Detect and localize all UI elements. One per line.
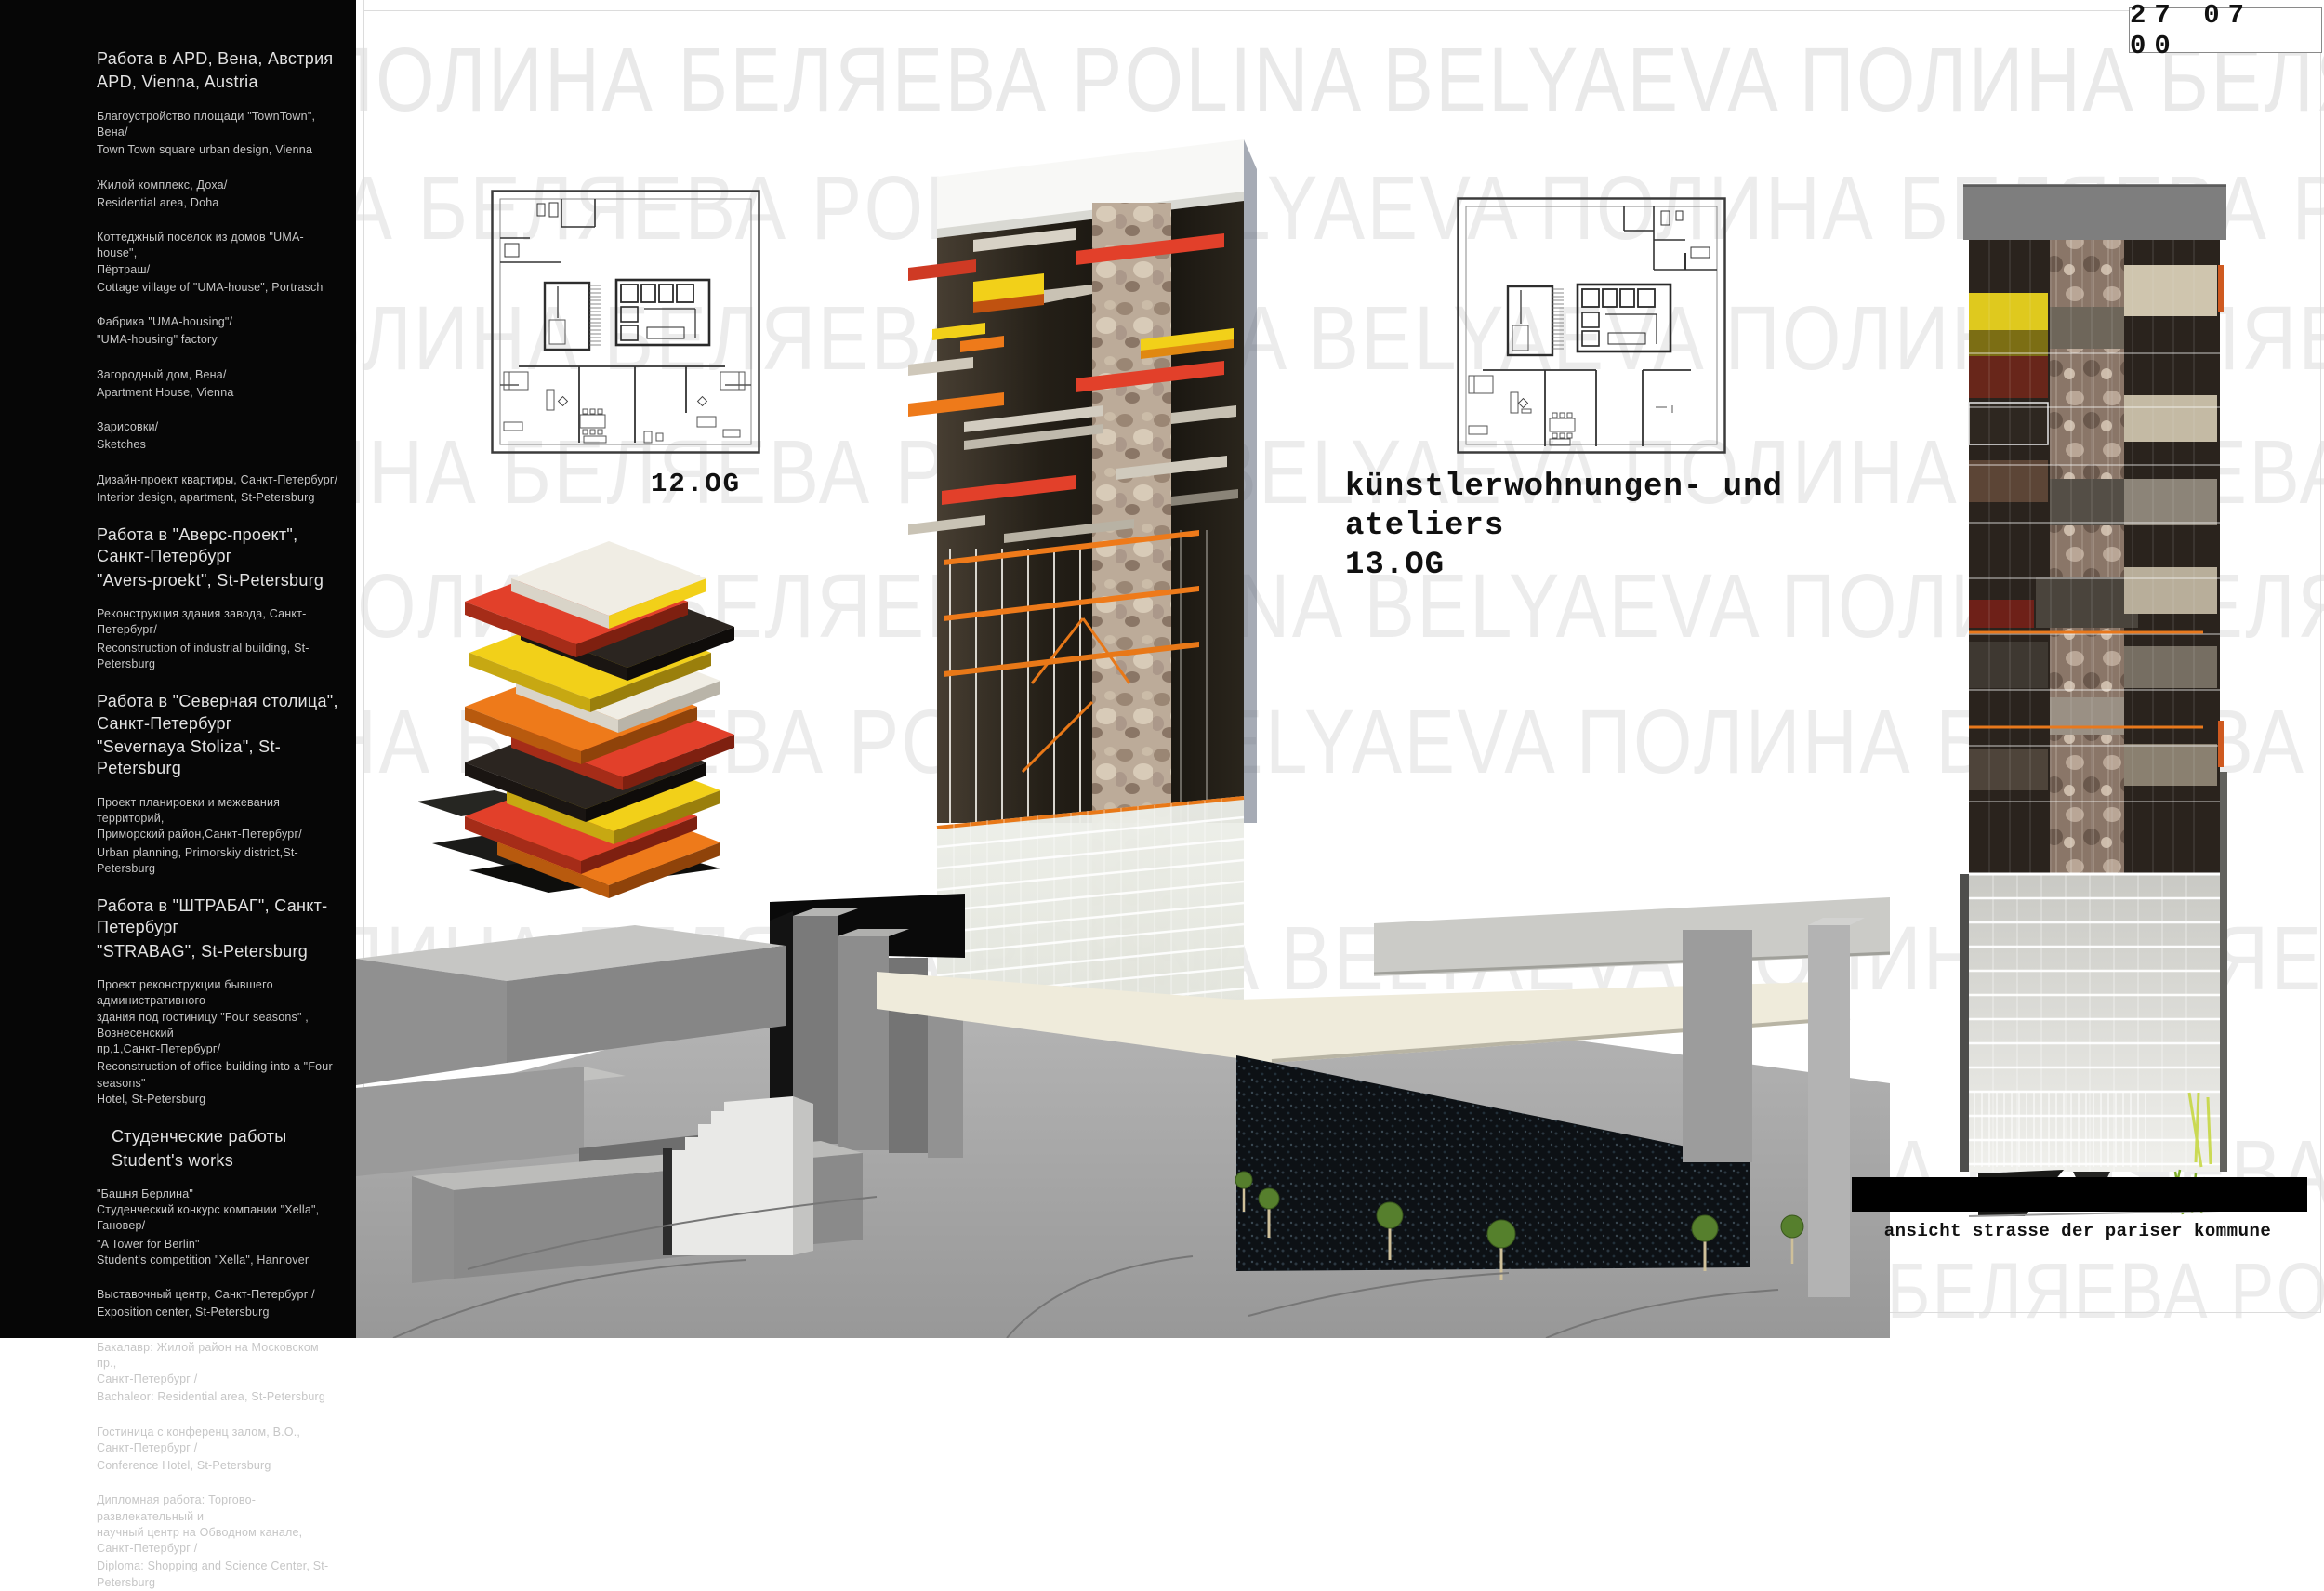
project-ru: Бакалавр: Жилой район на Московском пр.,… — [97, 1340, 341, 1388]
sidebar-project-item: Проект реконструкции бывшего администрат… — [97, 977, 341, 1107]
project-title-en: "Severnaya Stoliza", St-Petersburg — [97, 736, 341, 780]
sidebar-project-item: Фабрика "UMA-housing"/"UMA-housing" fact… — [97, 314, 341, 349]
sidebar-project-item: Реконструкция здания завода, Санкт-Петер… — [97, 606, 341, 672]
service-block — [545, 283, 601, 350]
sidebar-section-title: Студенческие работыStudent's works — [97, 1126, 341, 1172]
furniture — [504, 372, 745, 443]
project-title-en: "Avers-proekt", St-Petersburg — [97, 570, 341, 591]
apartment-walls — [500, 199, 595, 262]
plan-symbols — [559, 397, 707, 406]
sidebar-project-list: Работа в APD, Вена, АвстрияAPD, Vienna, … — [0, 0, 356, 1338]
frame-line-top — [363, 10, 2129, 11]
sidebar-project-item: Загородный дом, Вена/Apartment House, Vi… — [97, 367, 341, 402]
apartment-walls-lower — [500, 366, 751, 443]
floor-plan-13og — [1457, 197, 1726, 454]
project-title-ru: Работа в "ШТРАБАГ", Санкт-Петербург — [97, 895, 341, 939]
stacked-slab-model-rendering — [418, 523, 772, 904]
project-en: Interior design, apartment, St-Petersbur… — [97, 490, 341, 506]
floor-plan-12og — [491, 190, 760, 454]
sidebar-project-item: Дипломная работа: Торгово-развлекательны… — [97, 1492, 341, 1591]
project-ru: Проект реконструкции бывшего администрат… — [97, 977, 341, 1057]
project-ru: Загородный дом, Вена/ — [97, 367, 341, 383]
project-en: Urban planning, Primorskiy district,St-P… — [97, 845, 341, 878]
project-title-ru: Работа в APD, Вена, Австрия — [97, 48, 341, 70]
project-en: Cottage village of "UMA-house", Portrasc… — [97, 280, 341, 296]
roof-cap — [1963, 184, 2226, 240]
project-ru: Дизайн-проект квартиры, Санкт-Петербург/ — [97, 472, 341, 488]
project-title-en: APD, Vienna, Austria — [97, 72, 341, 93]
sidebar-project-item: "Башня Берлина" Студенческий конкурс ком… — [97, 1187, 341, 1268]
frame-line-right — [2320, 51, 2321, 1312]
project-ru: Фабрика "UMA-housing"/ — [97, 314, 341, 330]
project-en: Reconstruction of industrial building, S… — [97, 641, 341, 673]
sidebar-project-item: Гостиница с конференц залом, В.О., Санкт… — [97, 1425, 341, 1475]
project-ru: Дипломная работа: Торгово-развлекательны… — [97, 1492, 341, 1557]
project-en: "UMA-housing" factory — [97, 332, 341, 348]
sidebar-project-item: Жилой комплекс, Доха/Residential area, D… — [97, 178, 341, 212]
watermark-text: ПОЛИНА БЕЛЯЕВА POLINA BELYAEVA ПОЛИНА БЕ… — [356, 28, 2324, 132]
elevation-caption: ansicht strasse der pariser kommune — [1859, 1221, 2296, 1241]
project-en: Exposition center, St-Petersburg — [97, 1305, 341, 1320]
project-title-ru: Работа в "Северная столица", Санкт-Петер… — [97, 691, 341, 735]
project-en: Bachaleor: Residential area, St-Petersbu… — [97, 1389, 341, 1405]
project-ru: Реконструкция здания завода, Санкт-Петер… — [97, 606, 341, 639]
city-context-model — [356, 869, 1890, 1338]
sidebar-section-title: Работа в "ШТРАБАГ", Санкт-Петербург"STRA… — [97, 895, 341, 962]
date-stamp: 27 07 00 — [2130, 0, 2321, 61]
project-en: Apartment House, Vienna — [97, 385, 341, 401]
project-en: Conference Hotel, St-Petersburg — [97, 1458, 341, 1474]
apartment-walls-lower — [1483, 370, 1691, 446]
sidebar-section-title: Работа в "Северная столица", Санкт-Петер… — [97, 691, 341, 780]
atelier-caption-line3: 13.OG — [1345, 546, 1783, 585]
project-ru: Проект планировки и межевания территорий… — [97, 795, 341, 843]
plan-symbols — [1519, 399, 1528, 408]
atelier-caption-line1: künstlerwohnungen- und — [1345, 468, 1783, 507]
project-en: Reconstruction of office building into a… — [97, 1059, 341, 1107]
project-en: Sketches — [97, 437, 341, 453]
project-title-en: Student's works — [112, 1150, 341, 1172]
elevator-core — [1578, 285, 1670, 351]
project-en: Residential area, Doha — [97, 195, 341, 211]
project-title-ru: Студенческие работы — [112, 1126, 341, 1147]
portfolio-board-page: { "page": { "date_stamp": "27 07 00", "w… — [0, 0, 2324, 1338]
atelier-caption: künstlerwohnungen- und ateliers 13.OG — [1345, 468, 1783, 585]
project-en: Town Town square urban design, Vienna — [97, 142, 341, 158]
project-ru: "Башня Берлина" Студенческий конкурс ком… — [97, 1187, 341, 1235]
project-ru: Благоустройство площади "TownTown", Вена… — [97, 109, 341, 141]
model-slabs — [465, 541, 734, 898]
project-en: Diploma: Shopping and Science Center, St… — [97, 1558, 341, 1591]
project-ru: Зарисовки/ — [97, 419, 341, 435]
project-ru: Коттеджный поселок из домов "UMA-house",… — [97, 230, 341, 278]
project-ru: Выставочный центр, Санкт-Петербург / — [97, 1287, 341, 1303]
sidebar-project-item: Благоустройство площади "TownTown", Вена… — [97, 109, 341, 159]
project-ru: Жилой комплекс, Доха/ — [97, 178, 341, 193]
sidebar-project-item: Коттеджный поселок из домов "UMA-house",… — [97, 230, 341, 296]
sidebar-project-item: Проект планировки и межевания территорий… — [97, 795, 341, 877]
project-en: "A Tower for Berlin" Student's competiti… — [97, 1237, 341, 1269]
sidebar-project-item: Зарисовки/Sketches — [97, 419, 341, 454]
date-stamp-box: 27 07 00 — [2129, 7, 2322, 53]
sidebar-section-title: Работа в "Аверс-проект", Санкт-Петербург… — [97, 524, 341, 591]
sidebar-project-item: Выставочный центр, Санкт-Петербург /Expo… — [97, 1287, 341, 1321]
project-ru: Гостиница с конференц залом, В.О., Санкт… — [97, 1425, 341, 1457]
sidebar-project-item: Бакалавр: Жилой район на Московском пр.,… — [97, 1340, 341, 1406]
caption-black-bar — [1852, 1177, 2307, 1212]
elevator-core — [616, 280, 709, 345]
gray-pillar — [1808, 925, 1850, 1297]
service-block — [1508, 286, 1564, 355]
plan-label-12og: 12.OG — [651, 469, 741, 499]
sidebar-section-title: Работа в APD, Вена, АвстрияAPD, Vienna, … — [97, 48, 341, 94]
street-elevation-rendering — [1952, 177, 2236, 1227]
project-title-en: "STRABAG", St-Petersburg — [97, 941, 341, 962]
gray-wall — [1683, 930, 1752, 1162]
atelier-caption-line2: ateliers — [1345, 507, 1783, 546]
sidebar-project-item: Дизайн-проект квартиры, Санкт-Петербург/… — [97, 472, 341, 507]
apartment-walls — [1624, 206, 1717, 270]
project-title-ru: Работа в "Аверс-проект", Санкт-Петербург — [97, 524, 341, 568]
